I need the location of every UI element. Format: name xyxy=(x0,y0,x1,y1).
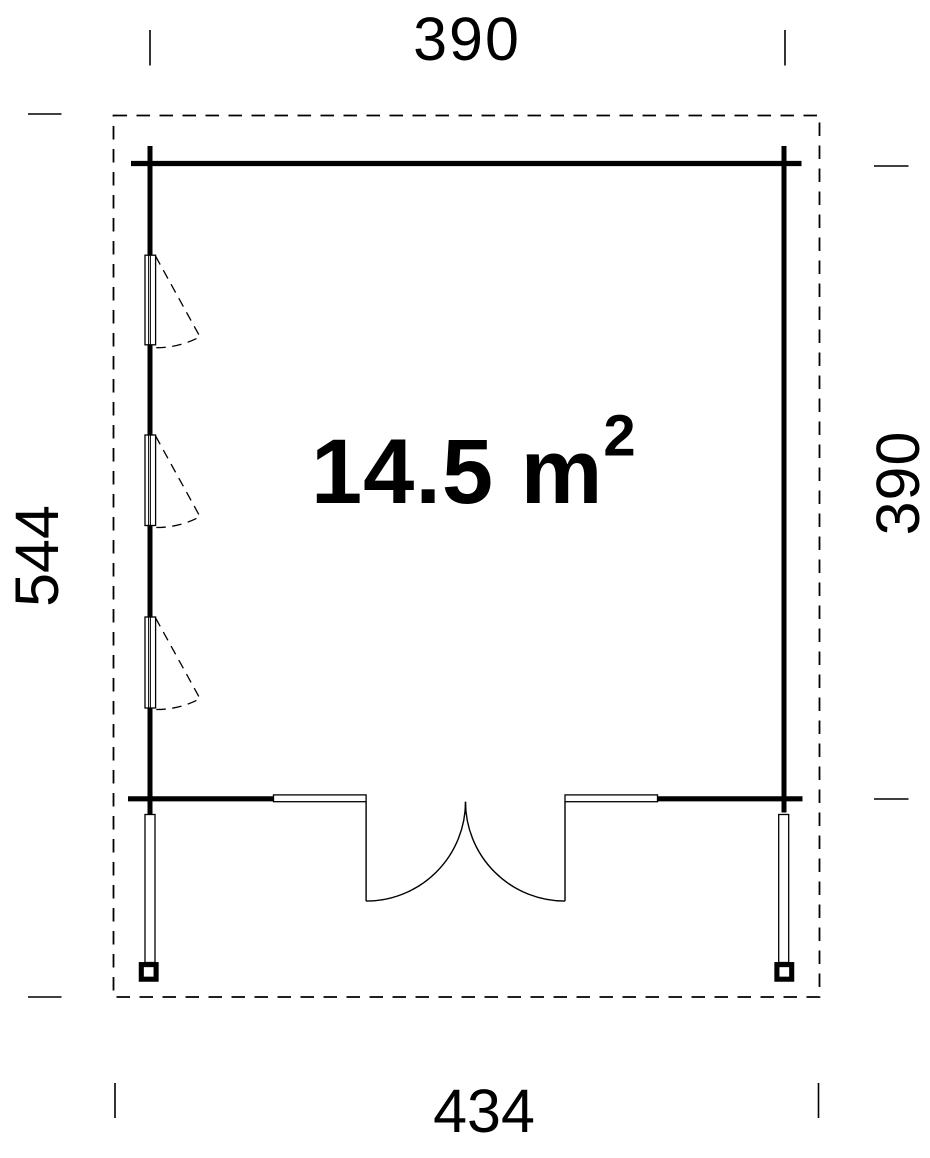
svg-text:544: 544 xyxy=(3,505,71,607)
svg-text:390: 390 xyxy=(864,431,930,536)
svg-text:434: 434 xyxy=(433,1077,535,1145)
svg-text:14.5 m2: 14.5 m2 xyxy=(311,404,637,524)
svg-text:390: 390 xyxy=(413,5,521,73)
